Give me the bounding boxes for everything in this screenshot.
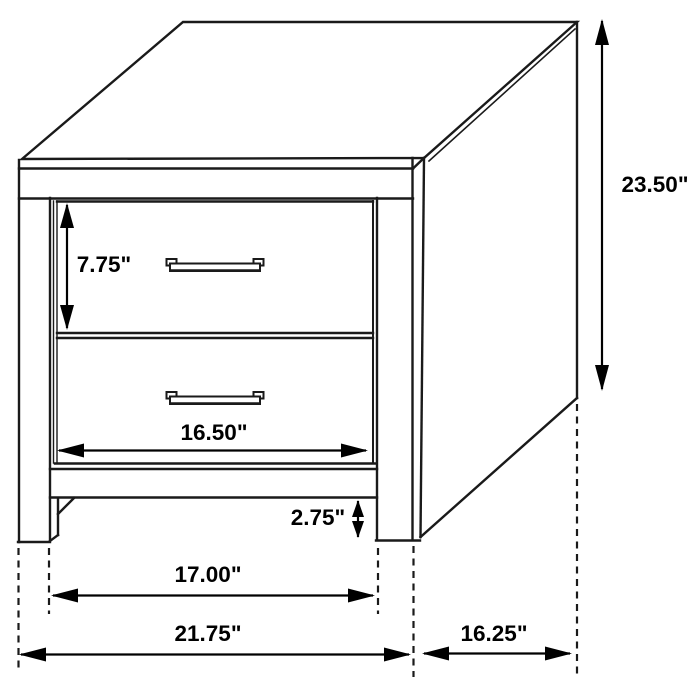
side-front-edge (421, 158, 425, 537)
nightstand-line-art (0, 0, 700, 700)
dim-label-overall-depth: 16.25" (461, 623, 528, 646)
dim-arrow-inner-width (51, 589, 375, 603)
side-bottom-edge (421, 398, 578, 537)
drawer-2-handle (167, 392, 264, 404)
dim-label-base-height: 2.75" (291, 507, 345, 530)
dim-label-overall-width: 21.75" (175, 623, 242, 646)
dim-label-drawer-width: 16.50" (181, 422, 248, 445)
left-leg-inner-face (50, 498, 74, 541)
dim-arrow-drawer-height (60, 203, 74, 330)
dim-label-overall-height: 23.50" (622, 174, 689, 197)
drawer-handles (167, 259, 264, 404)
cabinet-outline (18, 22, 577, 542)
dim-arrow-overall-width (19, 648, 411, 662)
cabinet-top-face (22, 22, 577, 159)
dim-arrow-overall-height (595, 19, 609, 391)
nightstand-dimension-diagram: 7.75" 23.50" 16.50" 2.75" 17.00" 21.75" … (0, 0, 700, 700)
dim-label-inner-width: 17.00" (175, 564, 242, 587)
dim-arrow-overall-depth (422, 647, 572, 661)
drawer-1-handle (167, 259, 264, 271)
dim-arrow-base-height (352, 500, 364, 538)
dim-label-drawer-height: 7.75" (77, 254, 131, 277)
dim-arrow-drawer-width (57, 444, 368, 458)
